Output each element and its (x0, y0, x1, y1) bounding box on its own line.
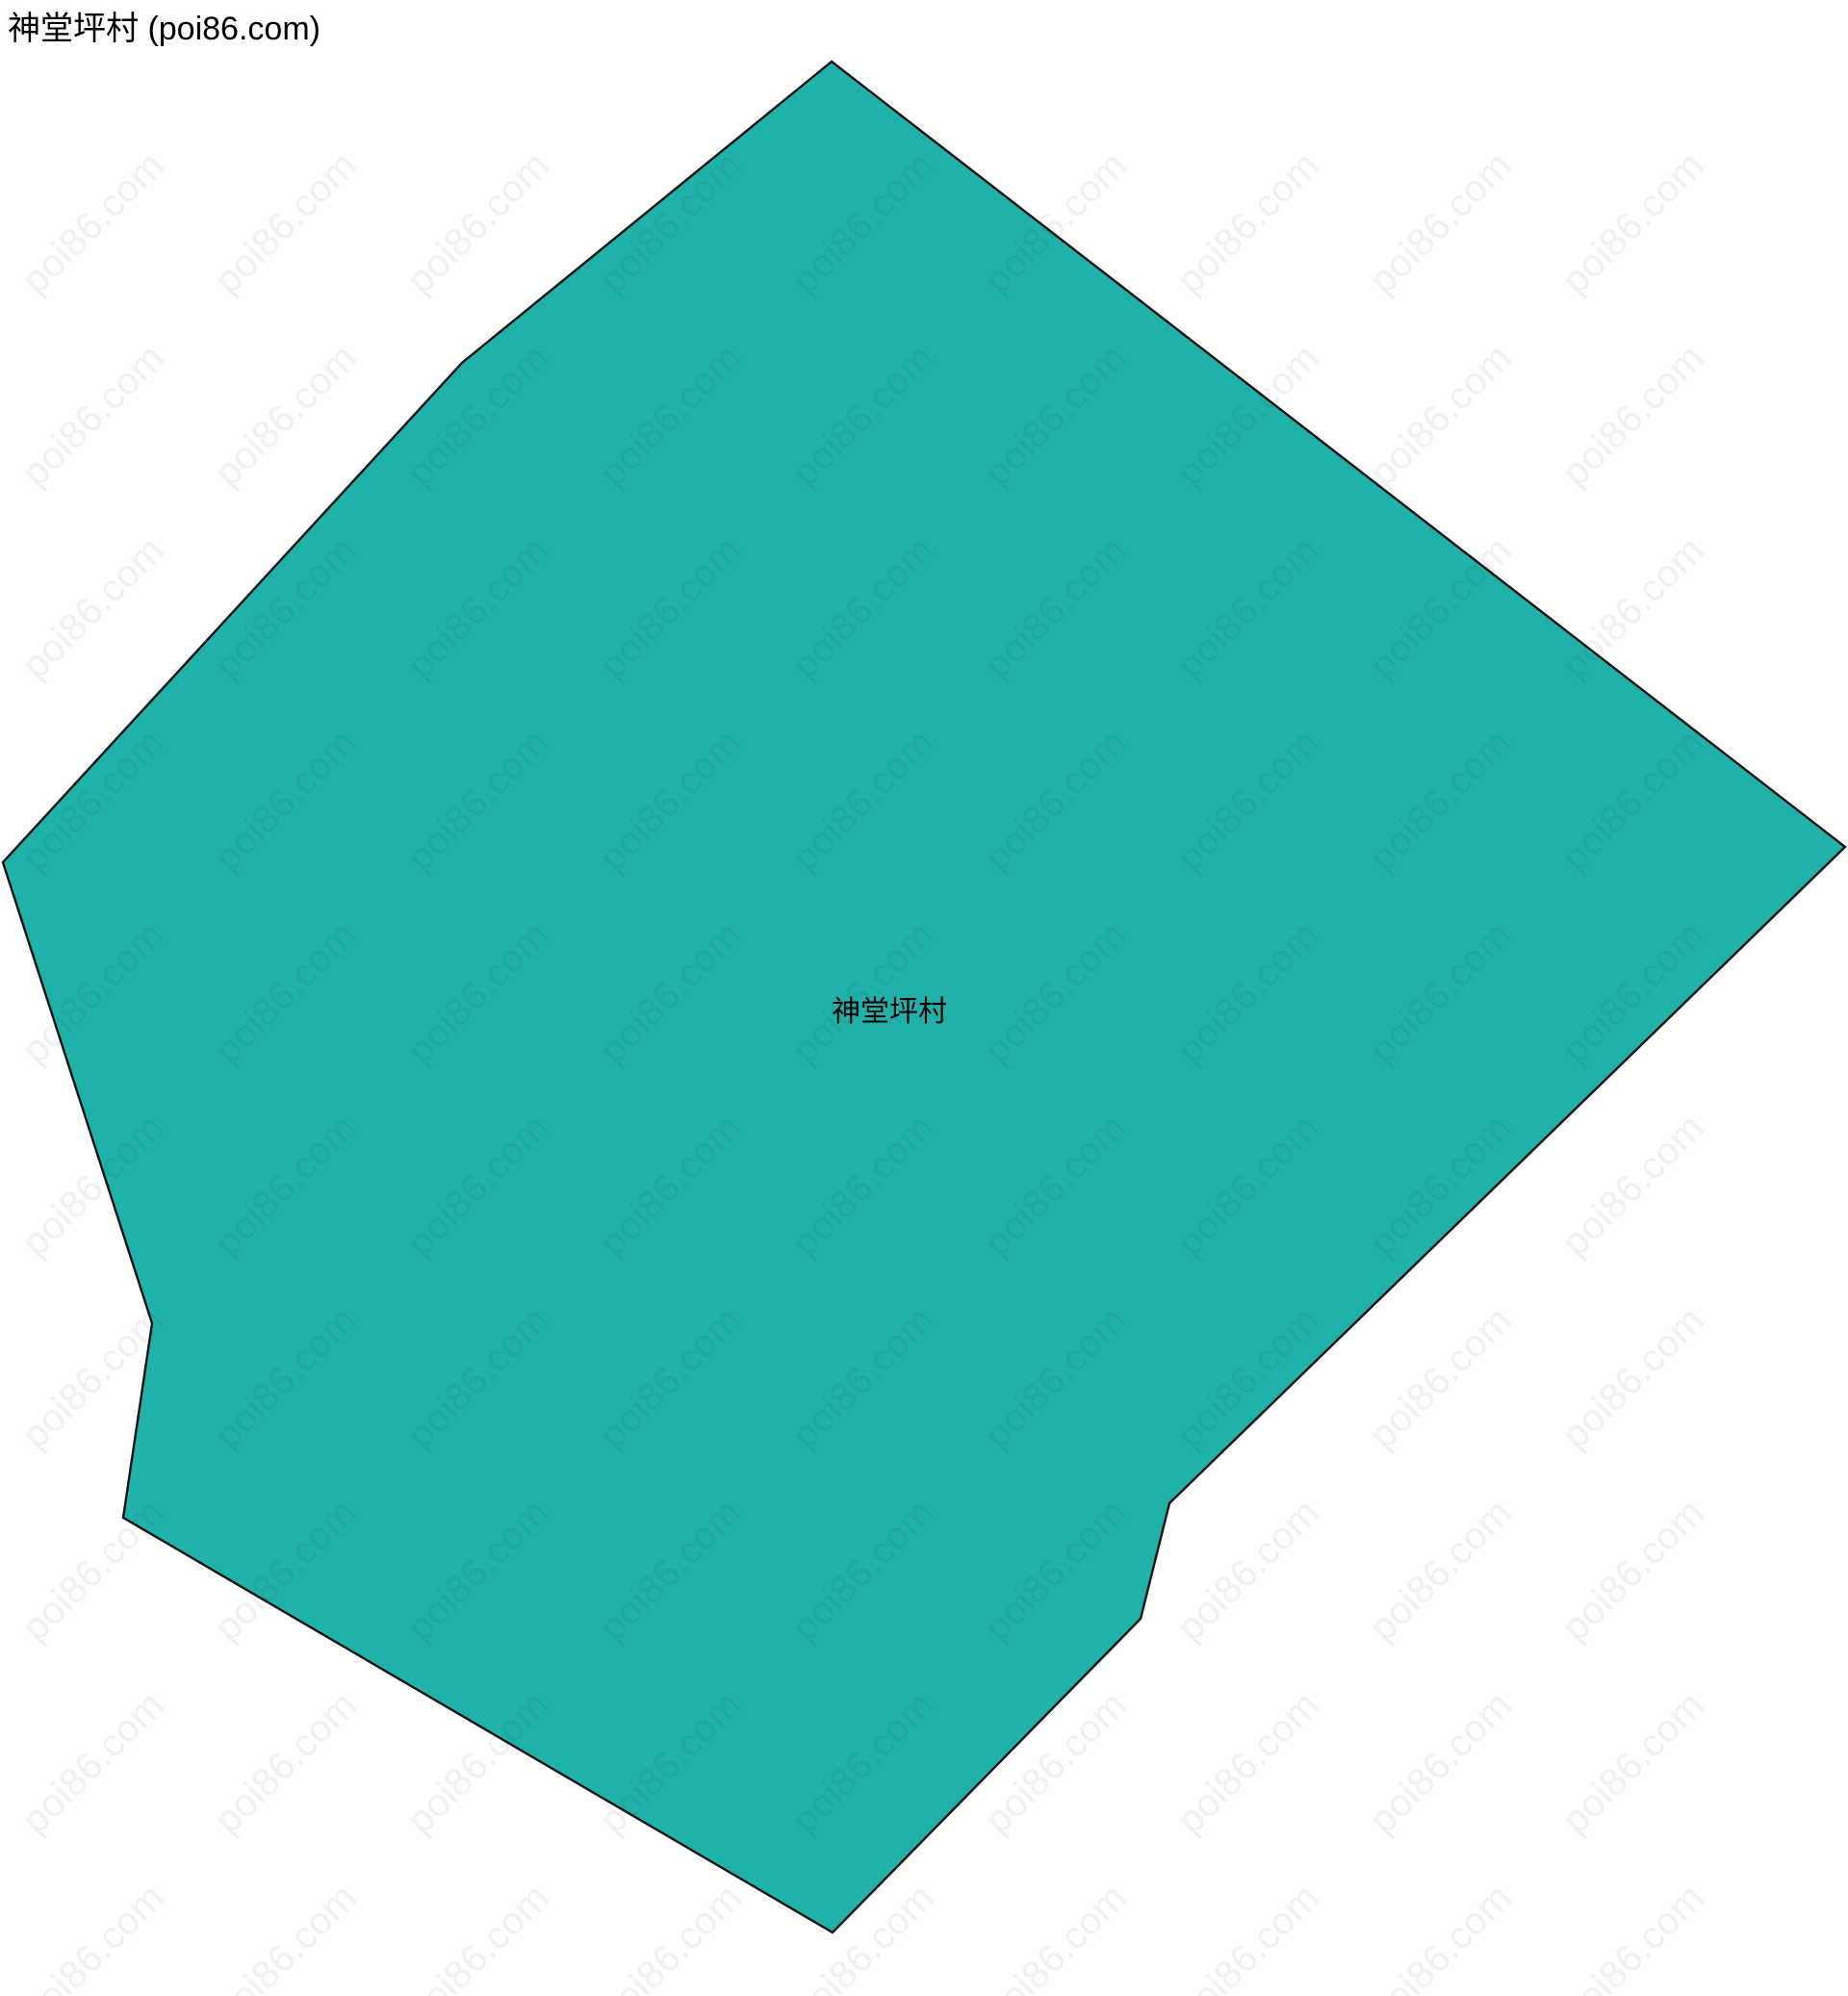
map-canvas: poi86.compoi86.compoi86.compoi86.compoi8… (0, 0, 1848, 1996)
page-title: 神堂坪村 (poi86.com) (8, 10, 321, 49)
region-label: 神堂坪村 (832, 987, 947, 1030)
